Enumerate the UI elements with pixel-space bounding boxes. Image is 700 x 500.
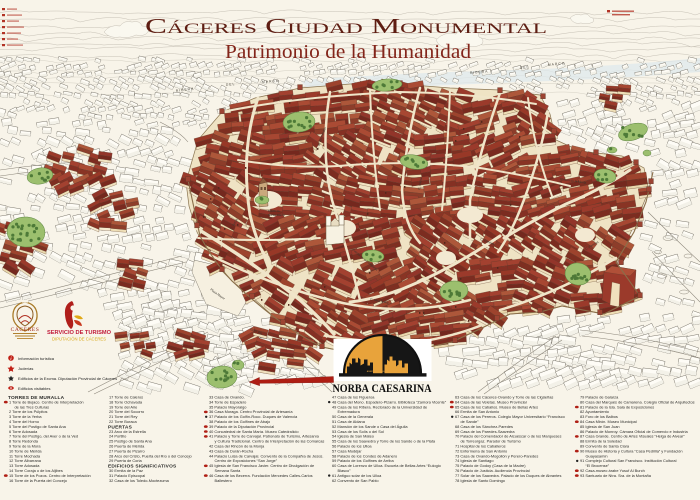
svg-text:32 Casa de los Toledo-Moctezum: 32 Casa de los Toledo-Moctezuma [109,478,170,483]
svg-text:62 Convento de San Pablo: 62 Convento de San Pablo [332,478,379,483]
svg-text:DIPUTACIÓN DE CÁCERES: DIPUTACIÓN DE CÁCERES [52,337,106,342]
svg-text:Información turística: Información turística [18,356,55,361]
svg-text:DEL: DEL [520,65,530,70]
svg-text:78 Iglesia de Santo Domingo: 78 Iglesia de Santo Domingo [455,478,505,483]
svg-text:Ballestero: Ballestero [215,478,232,483]
svg-text:Juderías: Juderías [18,366,33,371]
svg-text:Edificios de la Excma. Diputac: Edificios de la Excma. Diputación Provin… [18,376,117,381]
svg-text:Santa Maria: Santa Maria [268,213,285,217]
svg-text:29 Puerta de Coria: 29 Puerta de Coria [109,458,142,463]
svg-text:Edificios visitables: Edificios visitables [18,386,50,391]
svg-text:NORBA CAESARINA: NORBA CAESARINA [333,383,433,395]
svg-text:22 Torre Buraca: 22 Torre Buraca [109,419,137,424]
svg-text:93 Santuario de Ntra. Sra. de: 93 Santuario de Ntra. Sra. de la Montaña [580,473,652,478]
svg-text:CÁCERES: CÁCERES [11,325,40,333]
svg-text:APARTAMENTOS TURISTICOS: APARTAMENTOS TURISTICOS [367,370,399,373]
svg-text:SERVICIO DE TURISMO: SERVICIO DE TURISMO [47,330,111,336]
svg-text:16 Torre de la Puerta del Conc: 16 Torre de la Puerta del Concejo [9,478,67,483]
svg-text:Patrimonio de la Humanidad: Patrimonio de la Humanidad [225,41,471,63]
svg-text:Cáceres Ciudad Monumental: Cáceres Ciudad Monumental [145,14,547,38]
